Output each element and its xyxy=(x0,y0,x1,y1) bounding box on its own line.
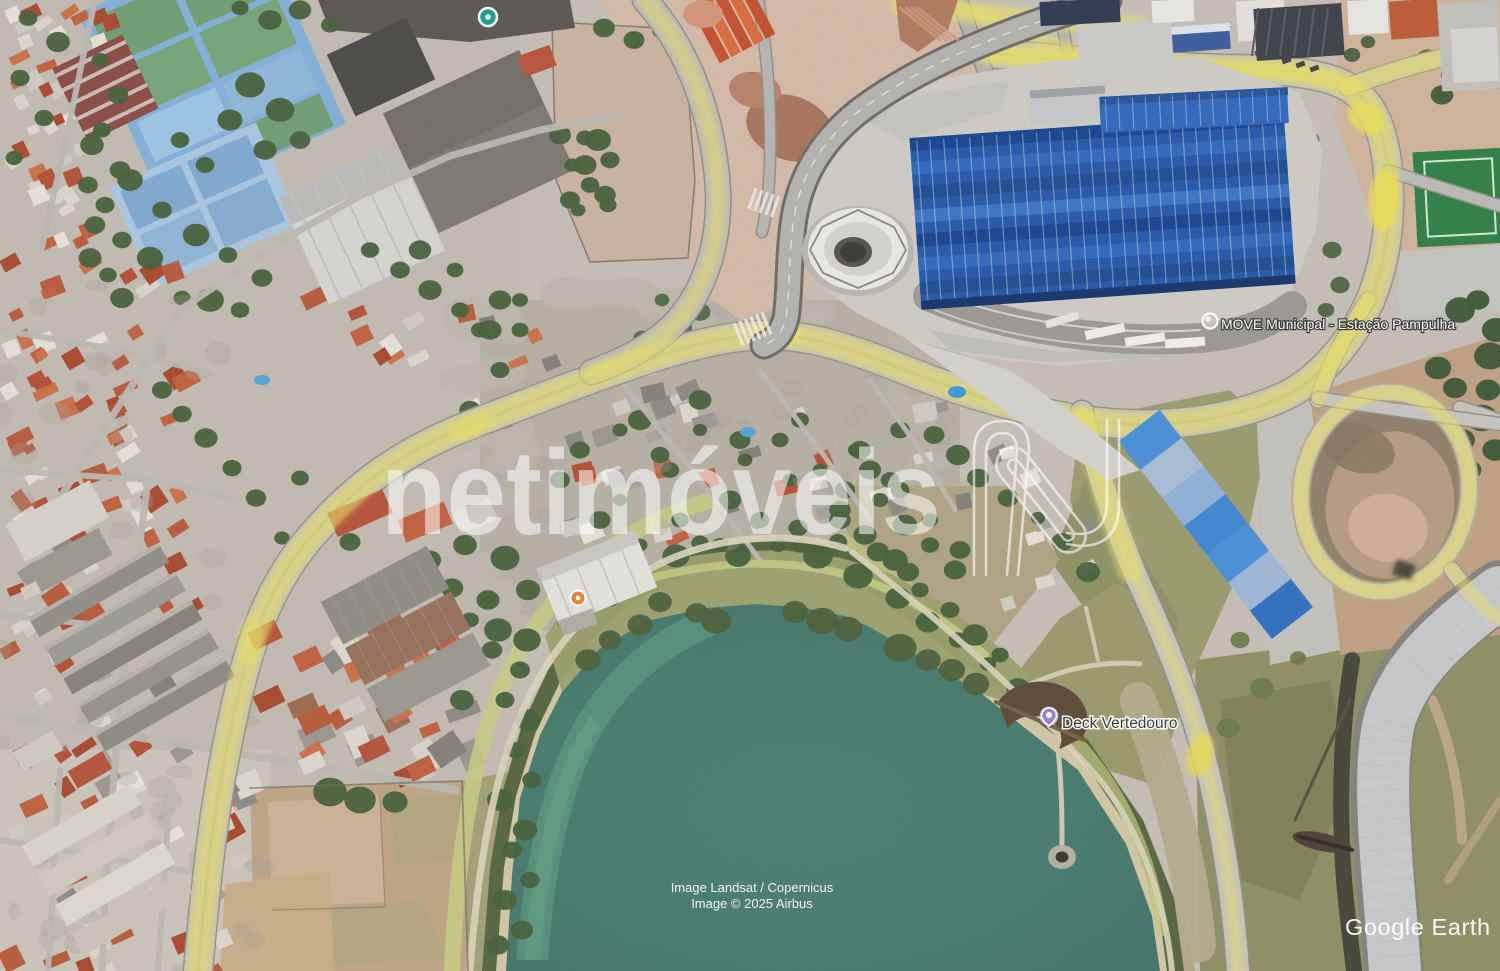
svg-text:netimóveis: netimóveis xyxy=(381,424,941,560)
svg-text:Google Earth: Google Earth xyxy=(1345,914,1491,940)
svg-text:MOVE Municipal - Estação Pamp: MOVE Municipal - Estação Pampulha xyxy=(1221,316,1455,332)
svg-text:Deck Vertedouro: Deck Vertedouro xyxy=(1062,715,1177,732)
svg-text:Image Landsat / Copernicus: Image Landsat / Copernicus xyxy=(671,880,834,895)
svg-text:Image © 2025 Airbus: Image © 2025 Airbus xyxy=(691,896,813,911)
